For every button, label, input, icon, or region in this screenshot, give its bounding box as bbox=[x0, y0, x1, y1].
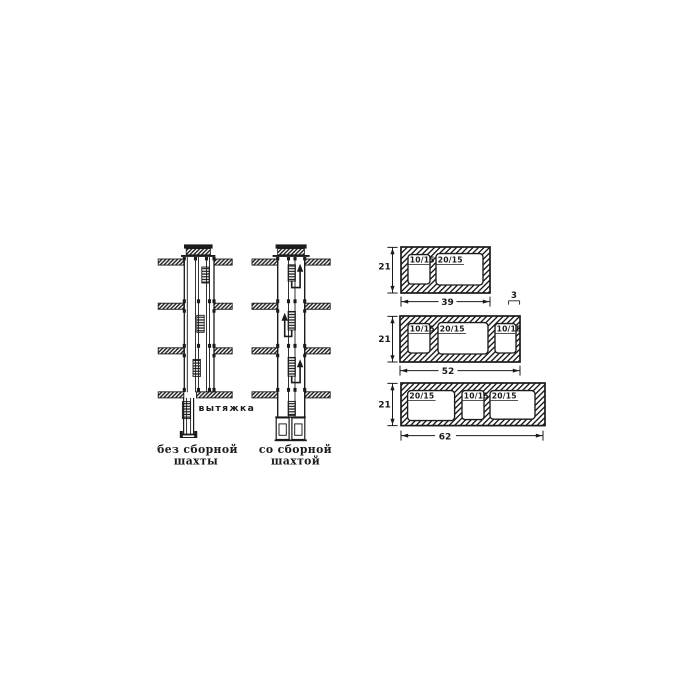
opening-label: 10/15 bbox=[464, 391, 489, 400]
dim-label-52: 52 bbox=[442, 367, 455, 377]
caption-left-line2: шахты bbox=[174, 455, 219, 468]
dimension-width-52: 52 bbox=[400, 366, 520, 378]
block-section-62: 20/15 10/15 20/15 21 62 bbox=[378, 383, 545, 442]
dimension-height-21: 21 bbox=[378, 247, 397, 293]
dimension-width-62: 62 bbox=[401, 431, 543, 443]
opening-label: 10/15 bbox=[410, 255, 435, 264]
dimension-width-39: 39 bbox=[401, 297, 490, 309]
opening-label: 10/15 bbox=[497, 324, 522, 333]
shaft-diagram-without-collector: вытяжка без сборной шахты bbox=[157, 244, 255, 467]
dim-label-21: 21 bbox=[378, 263, 391, 273]
exhaust-label: вытяжка bbox=[199, 403, 256, 414]
block-section-52: 10/15 20/15 10/15 21 52 bbox=[378, 316, 521, 377]
shaft-diagram-with-collector: со сборной шахтой bbox=[252, 244, 332, 467]
collector-base bbox=[275, 416, 307, 441]
dimension-wall-3: 3 bbox=[509, 291, 520, 304]
opening-label: 10/15 bbox=[410, 324, 435, 333]
caption-right-line2: шахтой bbox=[271, 455, 320, 468]
figure-ventilation-shafts-and-blocks: вытяжка без сборной шахты bbox=[0, 0, 700, 700]
opening-label: 20/15 bbox=[492, 391, 517, 400]
dim-label-21: 21 bbox=[378, 335, 391, 345]
block-section-39: 10/15 20/15 21 39 3 bbox=[378, 247, 519, 308]
opening-label: 20/15 bbox=[440, 324, 465, 333]
shaft-cap bbox=[181, 244, 215, 257]
opening-label: 20/15 bbox=[438, 255, 463, 264]
dimension-height-21: 21 bbox=[378, 316, 397, 362]
dim-label-39: 39 bbox=[441, 298, 454, 308]
dimension-height-21: 21 bbox=[378, 383, 397, 425]
dim-label-3: 3 bbox=[511, 291, 517, 301]
diagram-canvas: вытяжка без сборной шахты bbox=[0, 0, 700, 700]
dim-label-21: 21 bbox=[378, 401, 391, 411]
opening-label: 20/15 bbox=[409, 391, 434, 400]
dim-label-62: 62 bbox=[439, 432, 452, 442]
shaft-cap bbox=[273, 244, 310, 257]
